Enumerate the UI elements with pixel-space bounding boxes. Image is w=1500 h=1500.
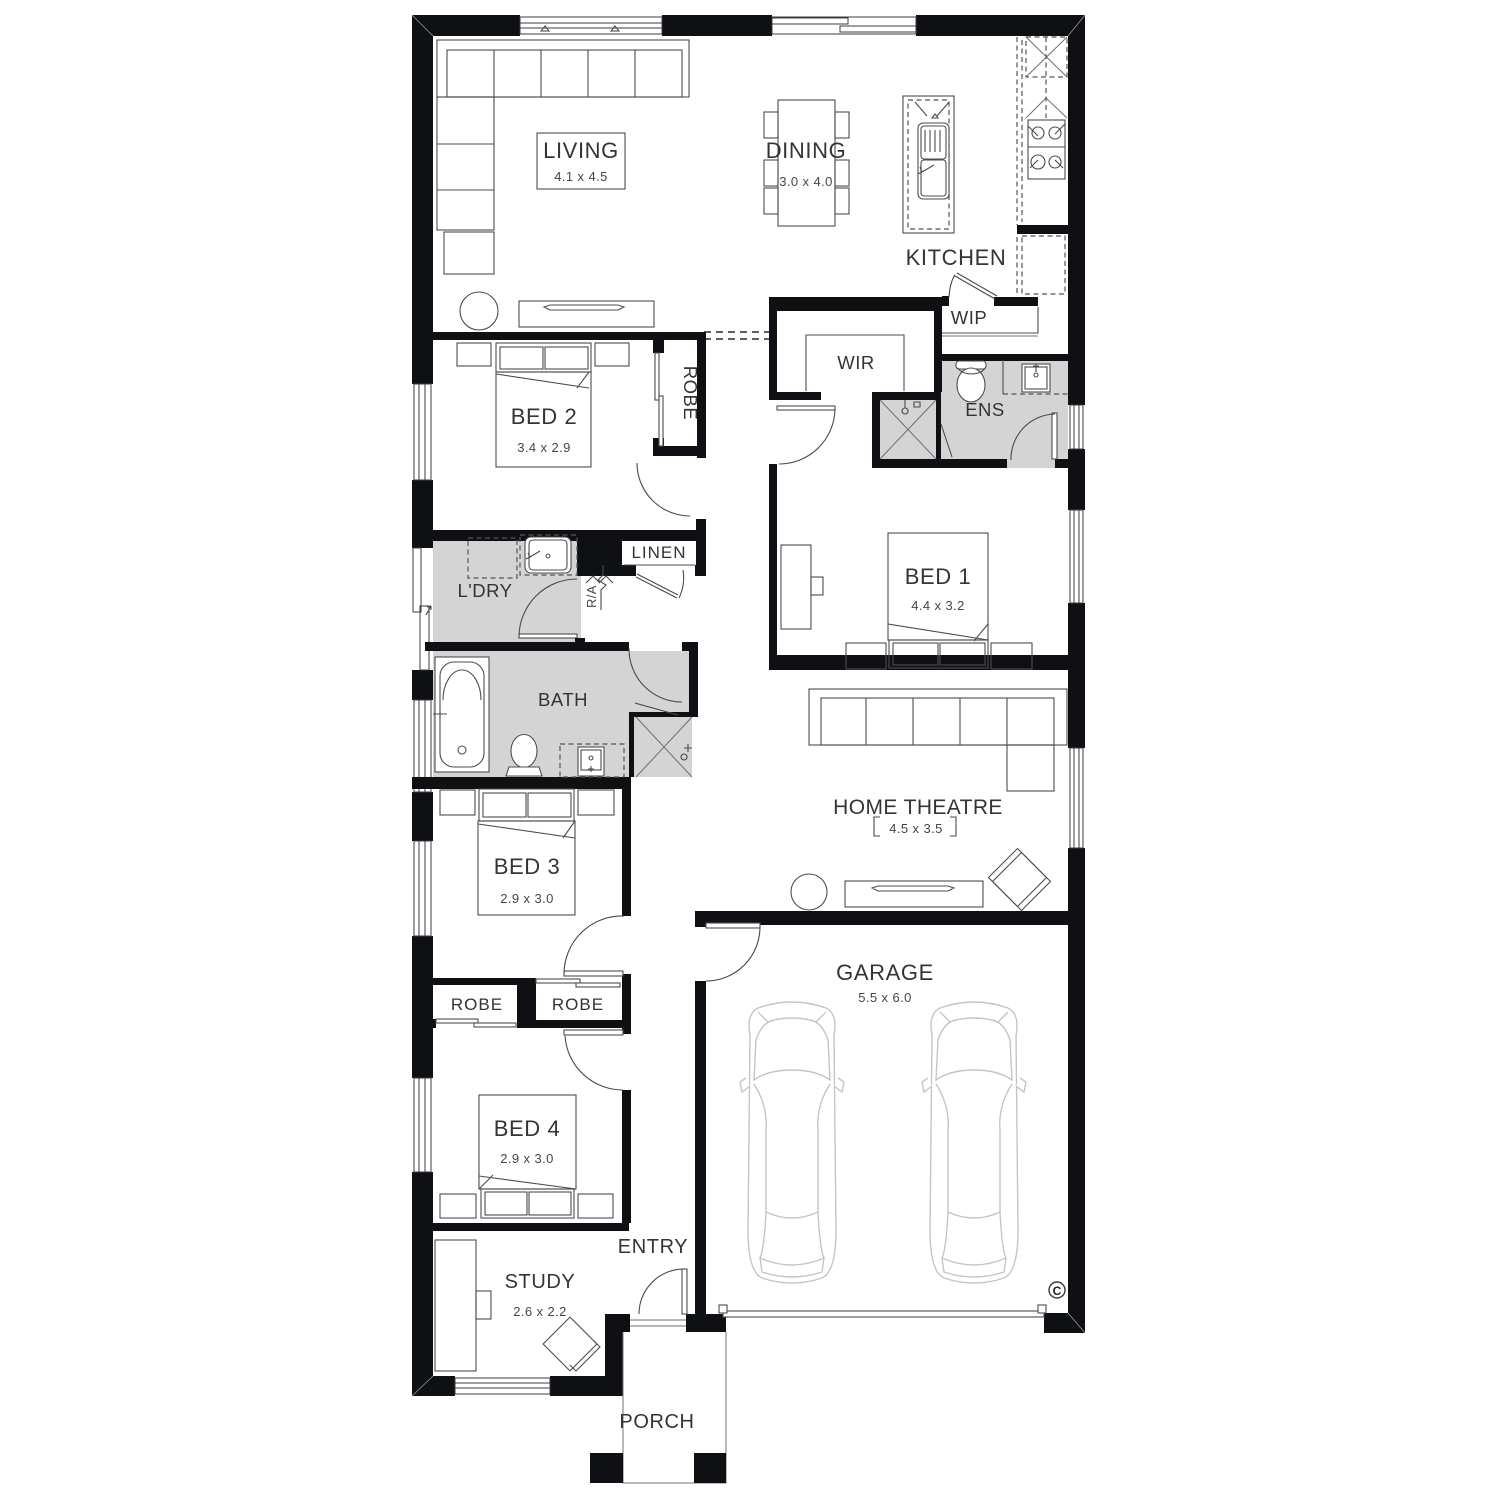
svg-text:5.5 x 6.0: 5.5 x 6.0 (858, 990, 911, 1005)
svg-text:ENTRY: ENTRY (618, 1236, 688, 1258)
svg-text:STUDY: STUDY (505, 1271, 576, 1293)
svg-text:PORCH: PORCH (619, 1411, 694, 1433)
svg-text:4.5 x 3.5: 4.5 x 3.5 (889, 821, 942, 836)
svg-text:DINING: DINING (766, 138, 847, 163)
svg-text:2.9 x 3.0: 2.9 x 3.0 (500, 891, 553, 906)
svg-text:GARAGE: GARAGE (836, 960, 934, 985)
svg-text:BATH: BATH (538, 689, 588, 710)
svg-text:R/A: R/A (584, 585, 599, 608)
svg-text:4.4 x 3.2: 4.4 x 3.2 (911, 598, 964, 613)
svg-text:4.1 x 4.5: 4.1 x 4.5 (554, 169, 607, 184)
svg-text:KITCHEN: KITCHEN (906, 245, 1007, 270)
svg-text:ROBE: ROBE (680, 366, 701, 420)
svg-text:BED 2: BED 2 (511, 404, 578, 429)
svg-text:LINEN: LINEN (631, 543, 686, 562)
svg-text:BED 1: BED 1 (905, 564, 972, 589)
svg-text:2.9 x 3.0: 2.9 x 3.0 (500, 1151, 553, 1166)
svg-text:ROBE: ROBE (552, 995, 604, 1014)
svg-text:C: C (1053, 1284, 1062, 1298)
svg-text:3.4 x 2.9: 3.4 x 2.9 (517, 440, 570, 455)
svg-text:HOME THEATRE: HOME THEATRE (833, 796, 1003, 819)
svg-text:ENS: ENS (965, 399, 1005, 420)
svg-text:LIVING: LIVING (543, 138, 619, 163)
svg-text:WIP: WIP (951, 307, 987, 328)
svg-text:L'DRY: L'DRY (457, 580, 512, 601)
svg-text:2.6 x 2.2: 2.6 x 2.2 (513, 1304, 566, 1319)
svg-text:BED 4: BED 4 (494, 1116, 561, 1141)
svg-text:WIR: WIR (837, 352, 874, 373)
svg-text:BED 3: BED 3 (494, 854, 561, 879)
svg-text:3.0 x 4.0: 3.0 x 4.0 (779, 174, 832, 189)
svg-text:ROBE: ROBE (451, 995, 503, 1014)
